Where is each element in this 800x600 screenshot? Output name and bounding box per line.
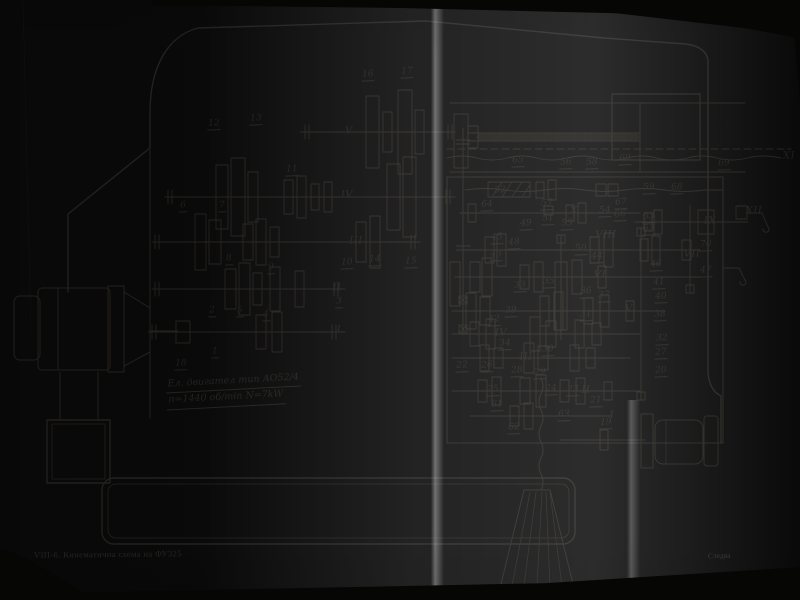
page-crease-line bbox=[23, 0, 31, 335]
diagram-label-43: 43 bbox=[489, 250, 503, 261]
diagram-label-41: 41 bbox=[652, 278, 666, 289]
diagram-label-20: 20 bbox=[654, 366, 668, 377]
lift-screw bbox=[500, 490, 574, 588]
diagram-label-26: 26 bbox=[480, 361, 494, 372]
diagram-label-22: 22 bbox=[455, 361, 469, 372]
diagram-label-I: I bbox=[610, 410, 615, 420]
diagram-label-42: 42 bbox=[487, 315, 501, 326]
diagram-label-17: 17 bbox=[400, 67, 414, 78]
diagram-label-28: 28 bbox=[510, 366, 524, 377]
diagram-label-45: 45 bbox=[490, 233, 504, 244]
diagram-label-69: 69 bbox=[717, 159, 731, 170]
diagram-label-55: 55 bbox=[560, 219, 574, 230]
diagram-label-24: 24 bbox=[544, 384, 558, 395]
diagram-label-2: 2 bbox=[208, 306, 216, 317]
diagram-label-4: 4 bbox=[262, 310, 270, 321]
diagram-label-35: 35 bbox=[542, 277, 556, 288]
diagram-label-31: 31 bbox=[579, 310, 593, 321]
diagram-label-48: 48 bbox=[507, 238, 521, 249]
diagram-label-62: 62 bbox=[507, 423, 521, 434]
chain-drive bbox=[539, 378, 543, 490]
diagram-label-56: 56 bbox=[559, 158, 573, 169]
diagram-label-X: X bbox=[570, 206, 578, 216]
diagram-label-68: 68 bbox=[670, 183, 684, 194]
diagram-label-64: 64 bbox=[480, 200, 494, 211]
diagram-label-9: 9 bbox=[267, 263, 275, 274]
diagram-label-63: 63 bbox=[557, 410, 571, 421]
diagram-label-11: 11 bbox=[285, 165, 299, 176]
diagram-label-I: I bbox=[337, 325, 342, 335]
diagram-label-53: 53 bbox=[642, 224, 656, 235]
diagram-label-37: 37 bbox=[597, 291, 611, 302]
figure-caption: VIII-6. Кинематична схема на ФУ325 bbox=[34, 548, 182, 560]
diagram-label-33: 33 bbox=[513, 281, 527, 292]
diagram-label-IV: IV bbox=[341, 190, 353, 200]
diagram-label-IV: IV bbox=[495, 328, 507, 338]
diagram-label-23: 23 bbox=[566, 385, 580, 396]
continued-note: Следва bbox=[708, 551, 731, 560]
diagram-label-58: 58 bbox=[585, 158, 599, 169]
diagram-label-67: 67 bbox=[614, 198, 628, 209]
diagram-label-16: 16 bbox=[361, 70, 375, 81]
diagram-label-57: 57 bbox=[540, 199, 554, 210]
diagram-label-XII: XII bbox=[746, 206, 763, 216]
feed-motor bbox=[560, 414, 718, 468]
diagram-label-40: 40 bbox=[654, 292, 668, 303]
diagram-label-44: 44 bbox=[590, 252, 604, 263]
diagram-label-29: 29 bbox=[533, 368, 547, 379]
diagram-label-36: 36 bbox=[579, 287, 593, 298]
diagram-label-50: 50 bbox=[574, 244, 588, 255]
diagram-label-49: 49 bbox=[519, 219, 533, 230]
diagram-label-II: II bbox=[581, 385, 590, 395]
diagram-label-14: 14 bbox=[368, 255, 382, 266]
diagram-label-VIII: VIII bbox=[595, 230, 616, 240]
diagram-label-66: 66 bbox=[613, 210, 627, 221]
diagram-label-VII: VII bbox=[684, 249, 701, 259]
diagram-label-III: III bbox=[519, 352, 533, 362]
diagram-label-63: 63 bbox=[642, 212, 656, 223]
diagram-label-34: 34 bbox=[498, 339, 512, 350]
diagram-label-1: 1 bbox=[211, 347, 219, 358]
diagram-label-59: 59 bbox=[642, 183, 656, 194]
diagram-label-IX: IX bbox=[704, 216, 716, 226]
diagram-label-54: 54 bbox=[598, 206, 612, 217]
main-motor bbox=[14, 286, 190, 372]
diagram-label-7: 7 bbox=[218, 201, 226, 212]
diagram-label-51: 51 bbox=[541, 214, 555, 225]
diagram-label-8: 8 bbox=[225, 254, 233, 265]
diagram-label-30: 30 bbox=[541, 345, 555, 356]
machine-outline bbox=[47, 21, 721, 544]
diagram-label-52: 52 bbox=[493, 186, 507, 197]
diagram-label-47: 47 bbox=[699, 266, 713, 277]
diagram-label-10: 10 bbox=[340, 258, 354, 269]
diagram-label-15: 15 bbox=[404, 257, 418, 268]
diagram-label-18: 18 bbox=[174, 359, 188, 370]
diagram-label-70: 70 bbox=[699, 240, 713, 251]
diagram-label-61: 61 bbox=[490, 400, 504, 411]
diagram-label-13: 13 bbox=[249, 114, 263, 125]
page-header-text: с к о р о с т и т е bbox=[183, 0, 313, 6]
diagram-label-V: V bbox=[345, 126, 353, 136]
diagram-label-VI: VI bbox=[594, 270, 606, 280]
diagram-label-6: 6 bbox=[179, 201, 187, 212]
diagram-label-XI: XI bbox=[783, 151, 795, 161]
diagram-label-V: V bbox=[625, 304, 633, 314]
diagram-label-32: 32 bbox=[655, 334, 669, 345]
crank-handle-lower bbox=[723, 268, 746, 285]
kinematic-diagram-svg bbox=[0, 0, 800, 600]
diagram-label-60: 60 bbox=[618, 154, 632, 165]
diagram-label-65: 65 bbox=[511, 156, 525, 167]
diagram-label-21: 21 bbox=[589, 396, 603, 407]
scanned-page-photo: 1234567891011121314151617181920212223242… bbox=[0, 0, 800, 600]
diagram-label-3: 3 bbox=[335, 297, 343, 308]
left-gearbox bbox=[148, 90, 470, 352]
diagram-label-27: 27 bbox=[654, 348, 668, 359]
diagram-label-III: III bbox=[349, 236, 363, 246]
diagram-label-5: 5 bbox=[236, 306, 244, 317]
diagram-label-12: 12 bbox=[207, 119, 221, 130]
diagram-label-46: 46 bbox=[649, 260, 663, 271]
diagram-label-38: 38 bbox=[653, 310, 667, 321]
diagram-label-II: II bbox=[332, 283, 341, 293]
diagram-label-25: 25 bbox=[486, 385, 500, 396]
diagram-label-39: 39 bbox=[504, 306, 518, 317]
